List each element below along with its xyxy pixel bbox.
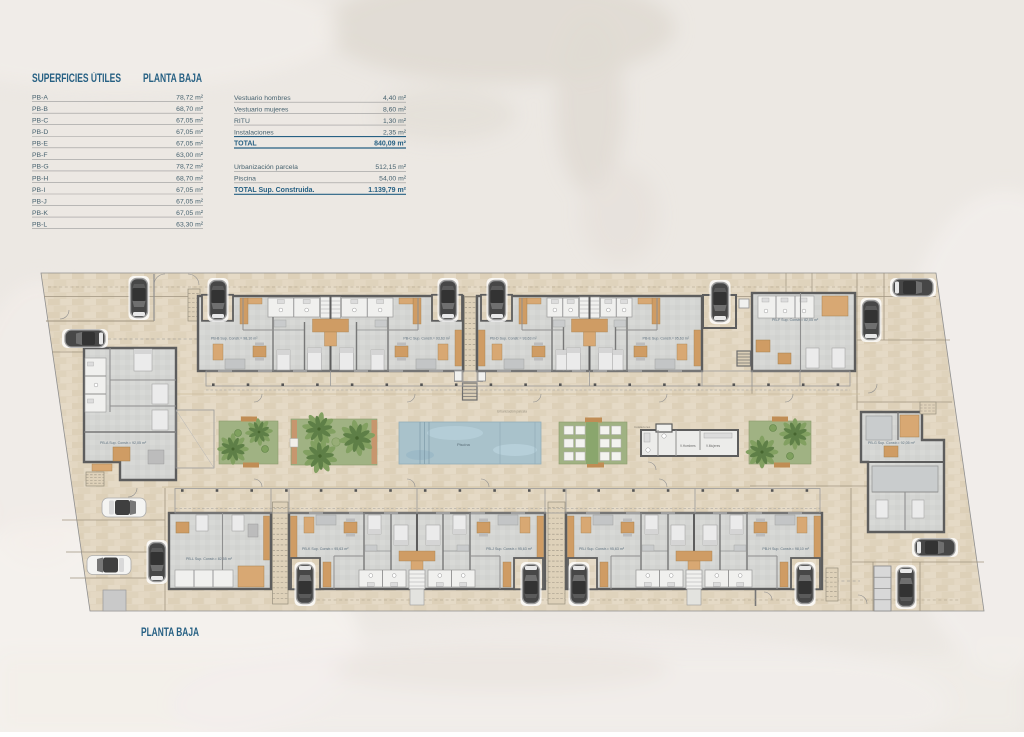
svg-text:67,05 m²: 67,05 m² [176, 187, 204, 194]
svg-text:54,00 m²: 54,00 m² [379, 176, 407, 183]
svg-text:Urbanización parcela: Urbanización parcela [234, 164, 298, 171]
svg-text:1.139,79 m²: 1.139,79 m² [368, 187, 406, 194]
svg-text:PB-A Sup. Constr.= 92,05 m²: PB-A Sup. Constr.= 92,05 m² [100, 441, 147, 445]
svg-text:PB-H Sup. Constr.= 98,10 m²: PB-H Sup. Constr.= 98,10 m² [762, 547, 809, 551]
svg-text:68,70 m²: 68,70 m² [176, 106, 204, 113]
svg-text:1,30 m²: 1,30 m² [383, 118, 407, 125]
svg-text:Piscina: Piscina [457, 442, 471, 447]
svg-text:TOTAL: TOTAL [234, 141, 257, 148]
svg-text:Instalaciones: Instalaciones [634, 425, 651, 429]
svg-text:68,70 m²: 68,70 m² [176, 175, 204, 182]
svg-text:2,35 m²: 2,35 m² [383, 129, 407, 136]
svg-text:PB-G Sup. Constr.= 92,05 m²: PB-G Sup. Constr.= 92,05 m² [868, 441, 916, 445]
svg-text:Vestuario mujeres: Vestuario mujeres [234, 106, 289, 113]
svg-text:8,60 m²: 8,60 m² [383, 106, 407, 113]
svg-text:840,09 m²: 840,09 m² [374, 141, 407, 148]
svg-text:PB-G: PB-G [32, 164, 49, 171]
svg-text:PB-E Sup. Constr.= 95,63 m²: PB-E Sup. Constr.= 95,63 m² [643, 337, 690, 341]
svg-text:Urbanización parcela: Urbanización parcela [497, 410, 527, 414]
svg-text:PB-F Sup. Constr.= 82,05 m²: PB-F Sup. Constr.= 82,05 m² [772, 318, 819, 322]
svg-text:TOTAL Sup. Construida.: TOTAL Sup. Construida. [234, 187, 315, 194]
svg-text:4,40 m²: 4,40 m² [383, 95, 407, 102]
svg-text:PB-K Sup. Constr.= 95,63 m²: PB-K Sup. Constr.= 95,63 m² [302, 547, 349, 551]
svg-text:PB-D Sup. Constr.= 93,63 m²: PB-D Sup. Constr.= 93,63 m² [490, 337, 537, 341]
svg-text:67,05 m²: 67,05 m² [176, 210, 204, 217]
svg-text:PB-B Sup. Constr.= 98,10 m²: PB-B Sup. Constr.= 98,10 m² [211, 337, 258, 341]
svg-text:67,05 m²: 67,05 m² [176, 198, 204, 205]
svg-text:PB-L Sup. Constr.= 82,55 m²: PB-L Sup. Constr.= 82,55 m² [186, 557, 233, 561]
svg-text:67,05 m²: 67,05 m² [176, 118, 204, 125]
svg-text:67,05 m²: 67,05 m² [176, 129, 204, 136]
svg-text:Instalaciones: Instalaciones [234, 129, 274, 136]
svg-text:PB-D: PB-D [32, 129, 48, 136]
svg-text:PLANTA BAJA: PLANTA BAJA [141, 627, 199, 639]
svg-text:RITU: RITU [234, 118, 250, 125]
svg-text:PLANTA BAJA: PLANTA BAJA [143, 73, 202, 85]
svg-text:PB-C Sup. Constr.= 93,63 m²: PB-C Sup. Constr.= 93,63 m² [403, 337, 450, 341]
svg-text:PB-B: PB-B [32, 106, 48, 113]
svg-text:78,72 m²: 78,72 m² [176, 94, 204, 101]
svg-text:SUPERFICIES ÚTILES: SUPERFICIES ÚTILES [32, 72, 121, 85]
svg-text:PB-J Sup. Constr.= 95,63 m²: PB-J Sup. Constr.= 95,63 m² [486, 547, 533, 551]
svg-text:63,00 m²: 63,00 m² [176, 152, 204, 159]
svg-text:PB-E: PB-E [32, 141, 48, 148]
svg-text:PB-F: PB-F [32, 152, 47, 159]
svg-text:PB-J: PB-J [32, 198, 47, 205]
svg-text:512,15 m²: 512,15 m² [375, 164, 406, 171]
svg-text:PB-I Sup. Constr.= 95,63 m²: PB-I Sup. Constr.= 95,63 m² [579, 547, 625, 551]
svg-text:PB-C: PB-C [32, 118, 48, 125]
svg-text:PB-K: PB-K [32, 210, 48, 217]
svg-text:Vestuario hombres: Vestuario hombres [234, 95, 291, 102]
svg-text:PB-L: PB-L [32, 221, 47, 228]
svg-text:V.Hombres: V.Hombres [680, 444, 696, 448]
svg-text:PB-I: PB-I [32, 187, 45, 194]
svg-text:V.Mujeres: V.Mujeres [706, 444, 720, 448]
svg-text:63,30 m²: 63,30 m² [176, 221, 204, 228]
svg-text:PB-H: PB-H [32, 175, 48, 182]
svg-text:67,05 m²: 67,05 m² [176, 141, 204, 148]
svg-text:78,72 m²: 78,72 m² [176, 164, 204, 171]
svg-text:PB-A: PB-A [32, 94, 48, 101]
svg-text:Piscina: Piscina [234, 176, 256, 183]
